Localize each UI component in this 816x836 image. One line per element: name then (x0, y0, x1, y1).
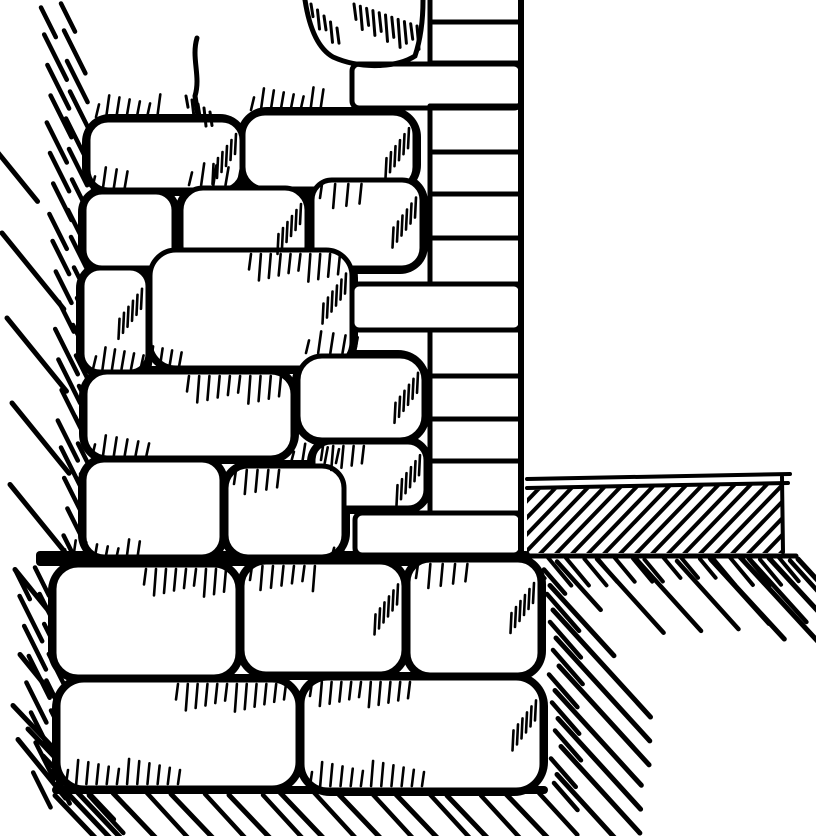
header-brick (355, 513, 521, 555)
header-brick (352, 64, 521, 108)
stone (226, 466, 344, 557)
stone (302, 678, 542, 790)
stone (54, 565, 238, 677)
header-brick (352, 284, 521, 330)
stone (88, 120, 242, 190)
footing-stones (48, 554, 548, 796)
stone (84, 460, 222, 557)
stone-foundation-brick-wall-figure (0, 0, 816, 836)
stone (58, 680, 298, 788)
engraving-page (0, 0, 816, 836)
stone (150, 250, 352, 368)
